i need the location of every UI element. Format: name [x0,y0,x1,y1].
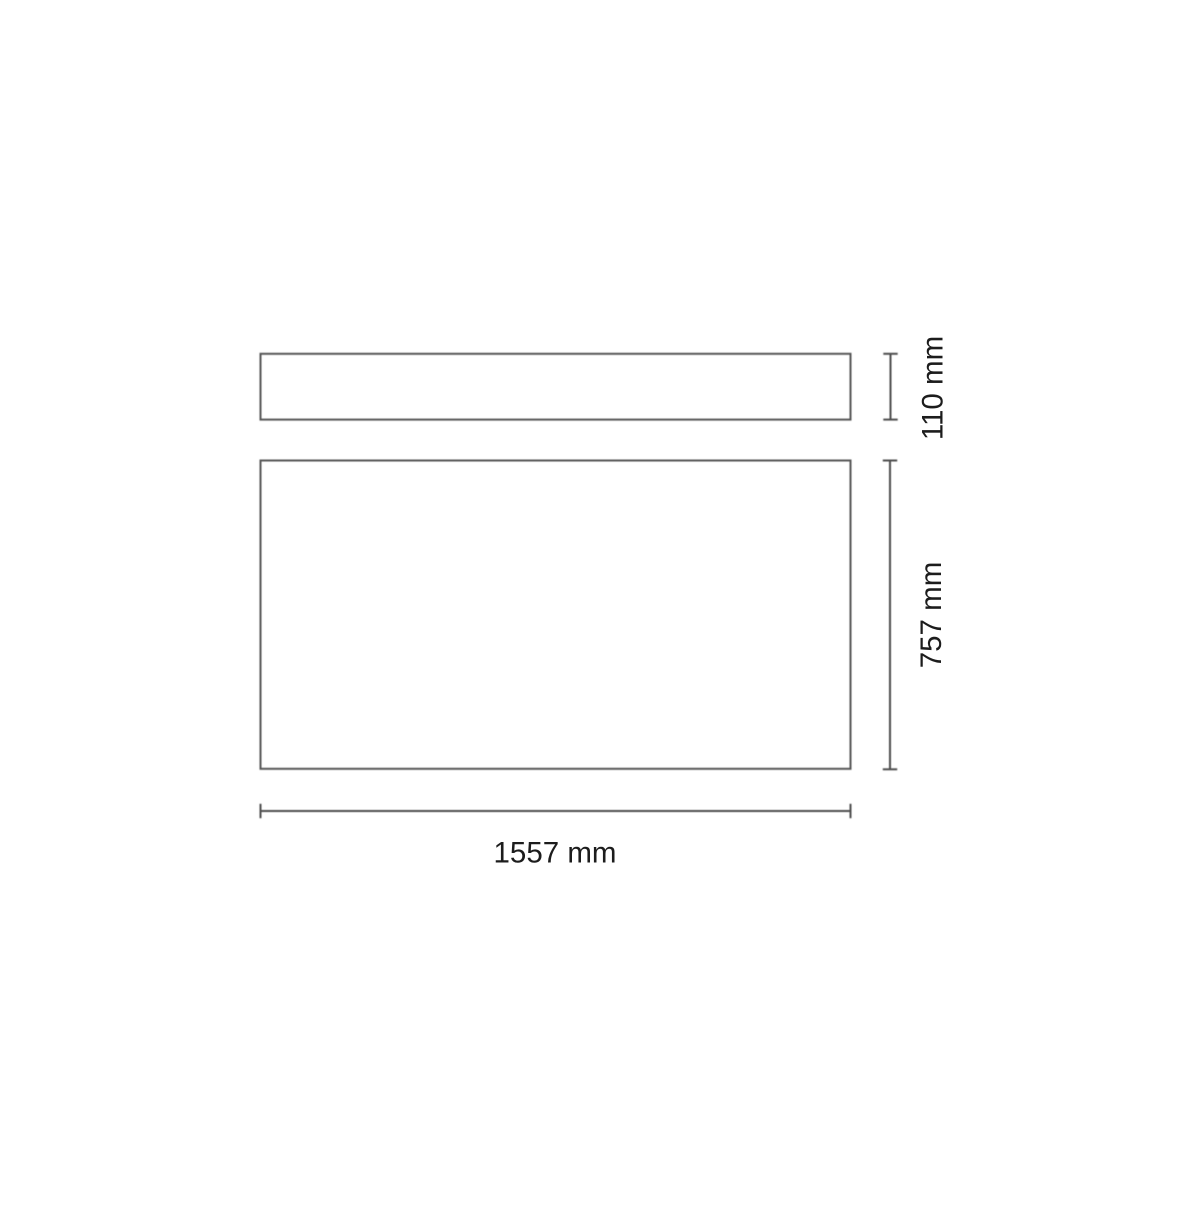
svg-text:110 mm: 110 mm [917,336,950,440]
svg-text:1557 mm: 1557 mm [494,837,617,870]
svg-text:757 mm: 757 mm [915,562,948,669]
